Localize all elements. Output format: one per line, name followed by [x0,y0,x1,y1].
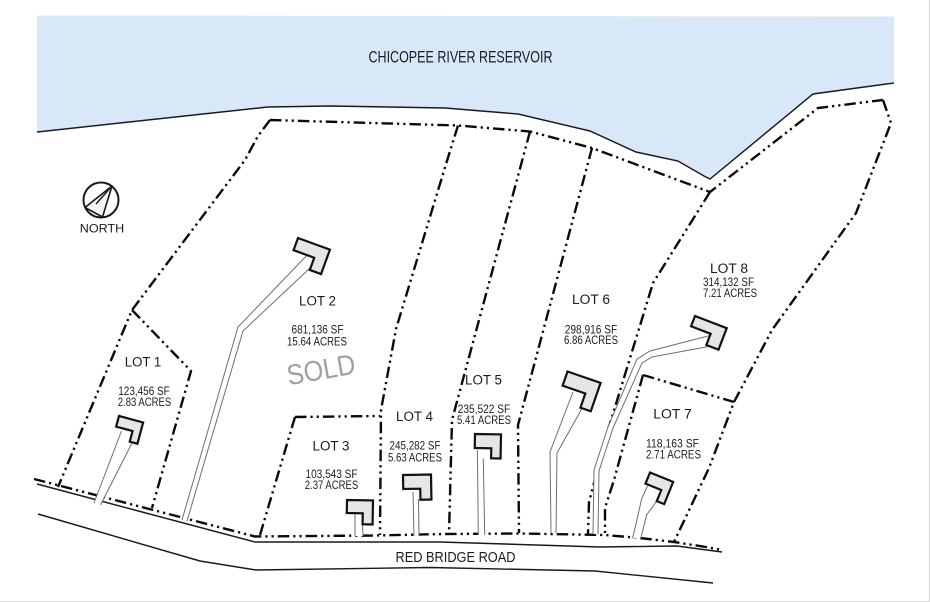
svg-text:NORTH: NORTH [80,223,125,236]
svg-text:LOT 5: LOT 5 [465,373,502,389]
svg-text:LOT 3: LOT 3 [313,439,350,455]
svg-text:6.86 ACRES: 6.86 ACRES [564,333,618,347]
svg-text:LOT 6: LOT 6 [572,292,610,308]
svg-text:2.83 ACRES: 2.83 ACRES [118,395,172,409]
svg-text:LOT 1: LOT 1 [125,355,162,371]
svg-text:LOT 4: LOT 4 [396,409,433,425]
svg-text:15.64 ACRES: 15.64 ACRES [287,335,347,349]
svg-text:5.41 ACRES: 5.41 ACRES [457,413,511,427]
svg-text:2.71 ACRES: 2.71 ACRES [646,448,701,462]
svg-text:5.63 ACRES: 5.63 ACRES [388,451,442,465]
svg-text:2.37 ACRES: 2.37 ACRES [305,478,359,492]
svg-text:RED BRIDGE ROAD: RED BRIDGE ROAD [396,549,516,566]
svg-text:CHICOPEE RIVER RESERVOIR: CHICOPEE RIVER RESERVOIR [369,49,553,67]
svg-text:7.21 ACRES: 7.21 ACRES [703,286,757,300]
svg-text:LOT 7: LOT 7 [653,407,692,423]
svg-text:LOT 2: LOT 2 [299,294,336,310]
svg-text:SOLD: SOLD [284,349,358,392]
